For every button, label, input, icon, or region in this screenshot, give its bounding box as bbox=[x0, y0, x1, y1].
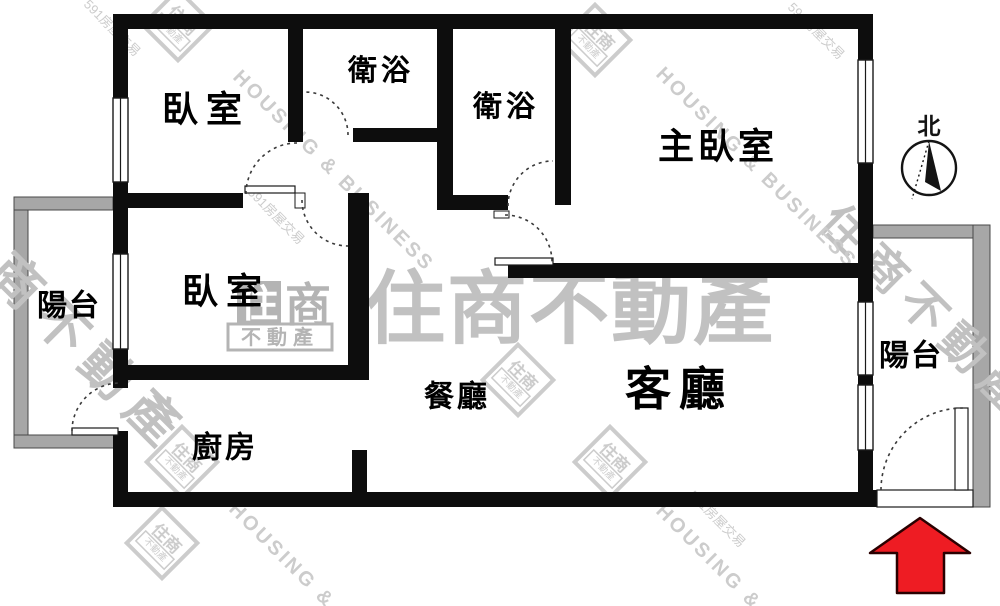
wall bbox=[113, 14, 872, 29]
watermark-housing-business: HOUSING & BUSINESS bbox=[651, 63, 861, 273]
entrance-threshold bbox=[877, 490, 973, 507]
door-swing-arc bbox=[505, 215, 552, 262]
watermark-diamond-logo: 住商不動產 bbox=[143, 0, 214, 60]
north-compass: 北 bbox=[902, 113, 956, 199]
room-label-bedroom-1: 臥室 bbox=[162, 89, 250, 130]
logo-sub-text: 不動產 bbox=[241, 325, 319, 349]
wall bbox=[437, 195, 508, 210]
wall bbox=[288, 29, 303, 142]
watermark-housing-business: HOUSING & BUSINESS bbox=[651, 500, 861, 606]
door-swing-arc bbox=[881, 408, 963, 490]
floor-plan-svg: 住商不動產住商不動產HOUSING & BUSINESSHOUSING & BU… bbox=[0, 0, 1000, 606]
wall bbox=[348, 193, 369, 380]
wall bbox=[113, 14, 128, 98]
wall bbox=[437, 29, 453, 210]
wall bbox=[353, 128, 437, 142]
watermark-diamond-logo: 住商不動產 bbox=[575, 427, 646, 498]
window bbox=[858, 302, 873, 375]
watermark-diamond-logo: 住商不動產 bbox=[127, 508, 198, 579]
north-label: 北 bbox=[918, 113, 941, 139]
room-label-living-room: 客廳 bbox=[625, 363, 733, 415]
window bbox=[113, 98, 128, 182]
room-label-bathroom-1: 衛浴 bbox=[347, 54, 414, 87]
wall bbox=[113, 182, 128, 254]
wall bbox=[858, 450, 873, 507]
room-label-bathroom-2: 衛浴 bbox=[472, 90, 539, 123]
room-label-bedroom-2: 臥室 bbox=[182, 271, 270, 312]
door-swing-arc bbox=[302, 200, 348, 246]
wall bbox=[858, 163, 873, 302]
door-jamb bbox=[295, 193, 305, 208]
watermark-591: 591房屋交易 bbox=[81, 0, 144, 59]
door-leaf bbox=[245, 186, 295, 193]
balcony-wall bbox=[14, 435, 118, 448]
window bbox=[113, 254, 128, 349]
room-label-master-bedroom: 主臥室 bbox=[658, 126, 778, 167]
wall bbox=[858, 14, 873, 60]
wall bbox=[113, 492, 877, 507]
wall bbox=[858, 375, 873, 385]
room-label-balcony-left: 陽台 bbox=[37, 289, 101, 323]
room-label-balcony-right: 陽台 bbox=[879, 339, 943, 373]
wall bbox=[352, 450, 367, 492]
wall bbox=[113, 365, 369, 380]
wall bbox=[113, 193, 243, 208]
floor-plan-page: 住商不動產住商不動產HOUSING & BUSINESSHOUSING & BU… bbox=[0, 0, 1000, 606]
door-leaf bbox=[72, 428, 118, 435]
watermark-diamond-logo: 住商不動產 bbox=[483, 345, 554, 416]
window bbox=[858, 60, 873, 163]
door-swing-arc bbox=[305, 92, 348, 135]
entrance-arrow bbox=[870, 518, 970, 593]
door-leaf bbox=[495, 258, 553, 265]
balcony-wall bbox=[14, 197, 113, 210]
watermark-591: 591房屋交易 bbox=[785, 0, 848, 62]
wall bbox=[555, 29, 571, 205]
balcony-wall bbox=[873, 225, 990, 238]
wall bbox=[508, 263, 858, 278]
window bbox=[858, 385, 873, 450]
watermark-diagonal-cn: 住商不動產 bbox=[0, 197, 199, 464]
compass-needle bbox=[925, 141, 941, 191]
door-swing-arc bbox=[508, 161, 553, 206]
door-leaf bbox=[955, 408, 968, 490]
watermark-housing-business: HOUSING & BUSINESS bbox=[224, 498, 434, 606]
watermark-housing-business: HOUSING & BUSINESS bbox=[228, 66, 438, 276]
room-label-kitchen: 廚房 bbox=[192, 431, 258, 465]
room-label-dining-room: 餐廳 bbox=[424, 380, 490, 414]
